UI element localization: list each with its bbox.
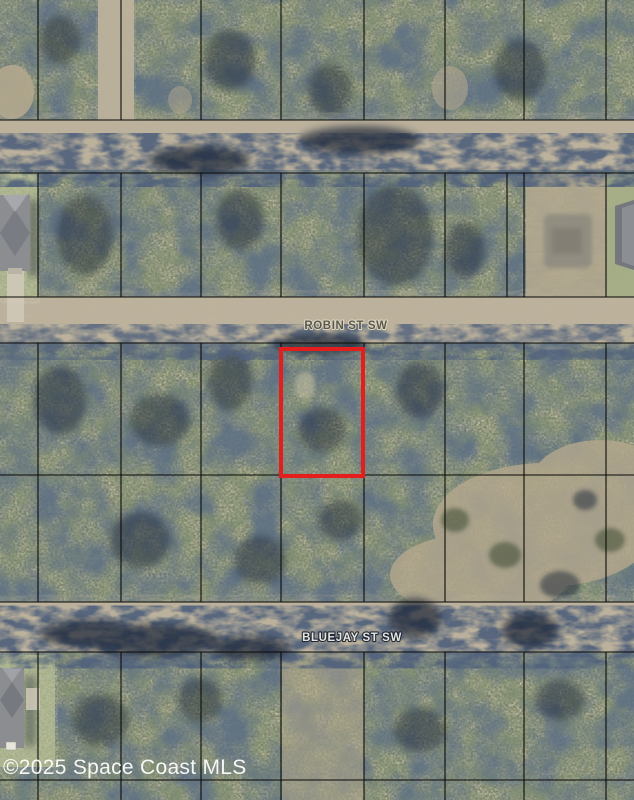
house-roof-northwest [0,195,30,274]
house-shadow [24,676,36,746]
street-label-robin: ROBIN ST SW [304,320,387,332]
street-label-bluejay: BLUEJAY ST SW [302,632,402,644]
mls-aerial-listing-photo: ROBIN ST SW BLUEJAY ST SW ©2025 Space Co… [0,0,634,800]
shed [6,742,16,750]
watermark: ©2025 Space Coast MLS [3,756,247,779]
sand-gap-in-parcel [295,371,315,399]
cleared-strip-south [282,652,364,800]
house-roof-southwest [0,668,24,748]
house-roof-northeast [615,200,634,270]
concrete-slab [544,214,592,268]
